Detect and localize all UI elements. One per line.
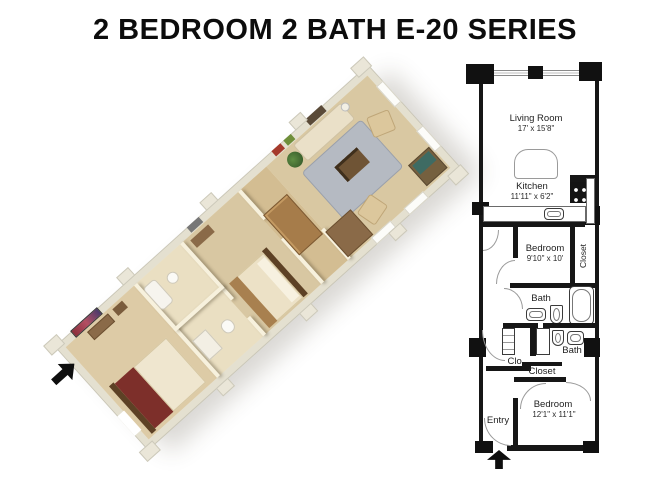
dining-table	[514, 149, 558, 179]
bedroom1-left-wall	[513, 227, 518, 258]
bath2-label: Bath	[562, 345, 582, 356]
bathtub-icon	[569, 286, 594, 325]
kitchen-counter-bottom	[483, 206, 586, 222]
column	[584, 338, 600, 357]
bath2-sink-icon	[567, 331, 584, 345]
kitchen-sink-icon	[544, 208, 564, 220]
wall-left	[479, 82, 483, 446]
floorplan-2d: Living Room 17' x 15'8" Kitchen 11'11" x…	[0, 0, 670, 480]
bedroom2-left-wall	[513, 398, 518, 446]
living-room-label: Living Room	[510, 113, 563, 124]
bedroom2-dims: 12'1" x 11'1"	[532, 410, 575, 419]
bath2-toilet-icon	[552, 330, 564, 346]
bedroom1-door-arc	[496, 260, 515, 284]
closet1-wall	[570, 227, 575, 283]
column	[579, 62, 602, 81]
clo-wall	[486, 366, 531, 371]
kitchen-label: Kitchen	[516, 181, 548, 192]
bedroom1-dims: 9'10" x 10'	[527, 254, 564, 263]
mid-wall-b	[543, 323, 599, 328]
bath1-label: Bath	[531, 293, 551, 304]
column	[475, 441, 493, 453]
bedroom1-label: Bedroom	[526, 243, 565, 254]
bedroom2-label: Bedroom	[534, 399, 573, 410]
stove-icon	[570, 182, 586, 203]
wall-right	[595, 80, 599, 446]
living-room-dims: 17' x 15'8"	[518, 124, 555, 133]
kitchen-counter-right	[586, 178, 595, 224]
bath1-toilet-icon	[550, 305, 563, 324]
closet2-bottom-wall	[514, 377, 566, 382]
column	[583, 441, 599, 453]
floorplan-page: 2 BEDROOM 2 BATH E-20 SERIES	[0, 0, 670, 480]
column	[466, 64, 494, 84]
closet2-label: Closet	[529, 366, 556, 377]
hall-closet-door-arc	[483, 230, 499, 251]
kitchen-dims: 11'11" x 6'2"	[511, 192, 554, 201]
column	[528, 66, 543, 79]
shower-box	[536, 328, 550, 355]
bath1-door-arc	[504, 288, 523, 309]
bath1-sink-icon	[526, 308, 546, 321]
closet1-label: Closet	[578, 244, 588, 268]
